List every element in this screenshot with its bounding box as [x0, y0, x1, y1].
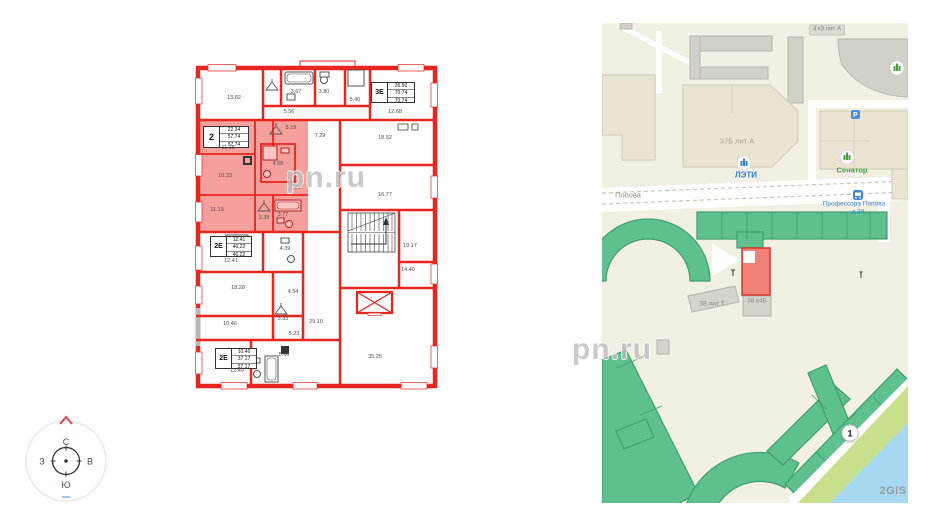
unit-area-row: 70.74 — [388, 90, 414, 97]
bathroom-fixtures — [285, 70, 364, 100]
room-area-label: 4.54 — [288, 289, 299, 295]
room-area-label: 4.39 — [280, 246, 291, 252]
compass-east: В — [87, 457, 93, 467]
map-label-poi-green: Сенатор — [836, 166, 867, 175]
map-label-bldg: 37Б лит А — [720, 137, 754, 146]
room-area-label: 18.28 — [231, 285, 245, 291]
room-area-label: 4.58 — [273, 161, 284, 167]
room-area-label: 14.40 — [401, 267, 415, 273]
room-area-label: 35.25 — [368, 354, 382, 360]
room-area-label: 3.80 — [319, 89, 330, 95]
room-area-label: 3.67 — [291, 89, 302, 95]
compass-north: С — [63, 437, 70, 447]
elevator — [357, 292, 392, 316]
map-label-street: Попова — [615, 191, 641, 200]
compass-west: З — [39, 457, 44, 467]
map-label-poi-blue: ЛЭТИ — [735, 171, 757, 180]
room-area-label: 13.82 — [227, 95, 241, 101]
room-area-label: 5.23 — [289, 331, 300, 337]
page: 2 22.34 57.74 57.74 3Е 26.50 70.74 70.74… — [0, 0, 936, 527]
map[interactable]: P Попова4 к3 лит А37Б лит АЛЭТИСенаторПр… — [602, 23, 908, 503]
unit-spec-box: 2Е 12.41 40.22 40.22 — [210, 236, 252, 257]
map-marker-1[interactable]: 1 — [842, 425, 859, 442]
watermark: pn.ru — [286, 161, 366, 195]
room-area-label: 19.17 — [403, 243, 417, 249]
unit-type: 2Е — [216, 349, 232, 368]
highlighted-building-notch — [743, 251, 755, 263]
map-label-bldg-sm: 38 лит Т — [699, 301, 724, 308]
room-area-label: 10.33 — [218, 173, 232, 179]
unit-area-row: 22.34 — [220, 127, 248, 134]
unit-spec-box: 2Е 10.46 37.17 37.17 — [215, 348, 257, 369]
compass-south: Ю — [61, 480, 70, 490]
unit-type: 2Е — [211, 237, 227, 256]
room-area-label: 12.41 — [224, 258, 238, 264]
room-area-label: 5.19 — [286, 125, 297, 131]
room-area-label: 18.52 — [378, 135, 392, 141]
room-area-label: 16.77 — [378, 192, 392, 198]
room-area-label: 5.56 — [284, 109, 295, 115]
unit-type: 3Е — [372, 83, 388, 102]
room-area-label: 12.68 — [388, 109, 402, 115]
map-label-logo[interactable]: 2GIS — [879, 485, 906, 497]
floor-plan: 2 22.34 57.74 57.74 3Е 26.50 70.74 70.74… — [193, 58, 443, 393]
compass: С Ю З В — [22, 412, 110, 508]
staircase — [348, 213, 395, 252]
map-label-transit: д 38 — [852, 209, 865, 216]
unit-area-row: 37.17 — [232, 356, 256, 363]
svg-text:P: P — [853, 112, 858, 119]
watermark: pn.ru — [572, 333, 652, 367]
unit-area-row: 40.22 — [227, 244, 251, 251]
room-area-label: 7.29 — [315, 133, 326, 139]
room-area-label: 11.15 — [221, 145, 234, 151]
unit-area-row: 12.41 — [227, 237, 251, 244]
room-area-label: 11.19 — [210, 207, 223, 213]
map-label-transit: Профессора Попова — [823, 201, 886, 208]
room-area-label: 3.33 — [278, 316, 289, 322]
room-area-label: 5.66 — [279, 352, 290, 358]
unit-area-row: 10.46 — [232, 349, 256, 356]
room-area-label: 3.39 — [259, 215, 270, 221]
unit-area-row: 26.50 — [388, 83, 414, 90]
room-area-label: 3.77 — [278, 212, 289, 218]
room-area-label: 29.10 — [309, 319, 323, 325]
floor-plan-canvas — [193, 58, 443, 393]
map-label-bldg-sm: 38 к4Б — [747, 298, 767, 305]
map-label-chip: 4 к3 лит А — [809, 25, 845, 36]
room-area-label: 10.46 — [223, 321, 237, 327]
unit-area-row: 57.74 — [220, 134, 248, 141]
room-area-label: 5.40 — [350, 97, 361, 103]
map-canvas[interactable]: P — [602, 23, 908, 503]
unit-spec-box: 3Е 26.50 70.74 70.74 — [371, 82, 415, 103]
unit-area-row: 70.74 — [388, 98, 414, 104]
room-area-label: 12.49 — [230, 368, 244, 374]
unit-type: 2 — [204, 127, 220, 147]
